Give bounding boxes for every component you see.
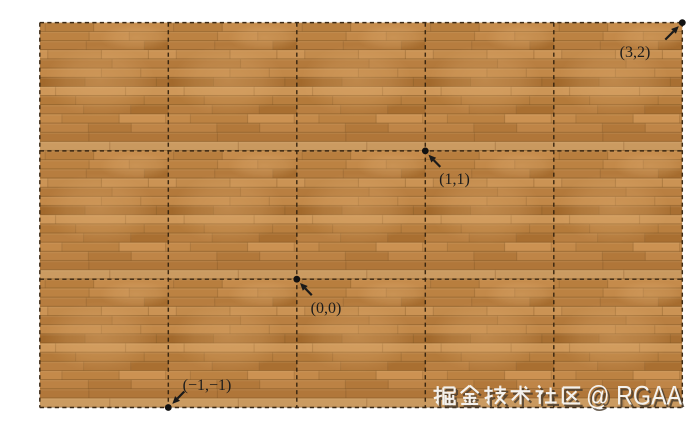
- svg-text:@ RGAA: @ RGAA: [586, 381, 682, 411]
- svg-text:(3,2): (3,2): [620, 44, 651, 61]
- svg-text:(1,1): (1,1): [439, 171, 470, 188]
- svg-text:(−1,−1): (−1,−1): [183, 377, 232, 394]
- svg-text:(0,0): (0,0): [311, 300, 342, 317]
